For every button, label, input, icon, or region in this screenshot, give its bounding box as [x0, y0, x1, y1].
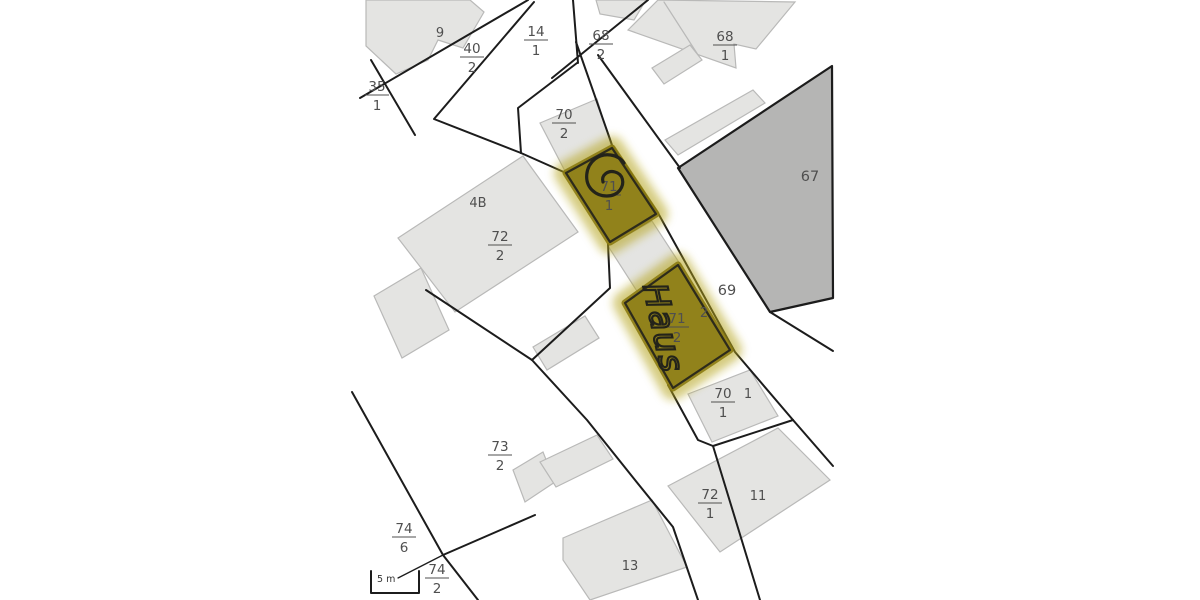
building-68-1 — [628, 0, 795, 68]
label-den: 2 — [496, 458, 505, 474]
label-den: 2 — [560, 126, 569, 142]
label-num: 74 — [428, 562, 445, 578]
label-den: 2 — [468, 60, 477, 76]
building-13 — [563, 500, 687, 600]
road-right-edge — [770, 312, 833, 351]
label-num: 73 — [491, 439, 508, 455]
parcel-label-40-2: 40 2 — [460, 41, 484, 76]
label-den: 1 — [373, 98, 382, 114]
label-den: 1 — [605, 198, 614, 214]
label-den: 2 — [433, 581, 442, 597]
boundary-line — [443, 515, 535, 555]
label-num: 35 — [368, 79, 385, 95]
label-num: 40 — [463, 41, 480, 57]
parcel-label-14-1: 14 1 — [524, 24, 548, 59]
label-den: 2 — [597, 47, 606, 63]
label-building-9: 9 — [436, 26, 444, 41]
boundary-line — [573, 0, 578, 63]
label-house-11: 11 — [750, 489, 767, 504]
building-top-small — [596, 0, 646, 20]
label-den: 1 — [706, 506, 715, 522]
label-parcel-69: 69 — [718, 283, 736, 299]
label-den: 2 — [496, 248, 505, 264]
parcel-label-35-1: 35 1 — [365, 79, 389, 114]
label-den: 1 — [721, 48, 730, 64]
building-strip-south — [533, 316, 599, 370]
label-num: 72 — [491, 229, 508, 245]
label-num: 68 — [592, 28, 609, 44]
label-house-1: 1 — [744, 387, 752, 402]
label-num: 70 — [714, 386, 731, 402]
parcel-label-74-2: 74 2 — [425, 562, 449, 597]
label-building-4b: 4B — [469, 196, 486, 211]
label-den: 1 — [532, 43, 541, 59]
parcel-label-74-6: 74 6 — [392, 521, 416, 556]
scale-bar-label: 5 m — [377, 574, 395, 585]
label-den: 1 — [719, 405, 728, 421]
label-num: 72 — [701, 487, 718, 503]
building-73-2-large — [540, 435, 613, 487]
scale-bar: 5 m — [371, 571, 419, 593]
cadastral-map-canvas: 14 1 40 2 35 1 68 2 68 1 70 2 — [0, 0, 1200, 600]
label-parcel-67: 67 — [801, 169, 819, 185]
label-num: 68 — [716, 29, 733, 45]
label-num: 74 — [395, 521, 412, 537]
label-den: 6 — [400, 540, 409, 556]
parcel-label-73-2: 73 2 — [488, 439, 512, 474]
label-house-13: 13 — [622, 559, 639, 574]
building-small-above-67 — [652, 45, 702, 84]
label-num: 70 — [555, 107, 572, 123]
map-svg: 14 1 40 2 35 1 68 2 68 1 70 2 — [0, 0, 1200, 600]
label-num: 14 — [527, 24, 544, 40]
label-house-2: 2 — [700, 306, 708, 321]
